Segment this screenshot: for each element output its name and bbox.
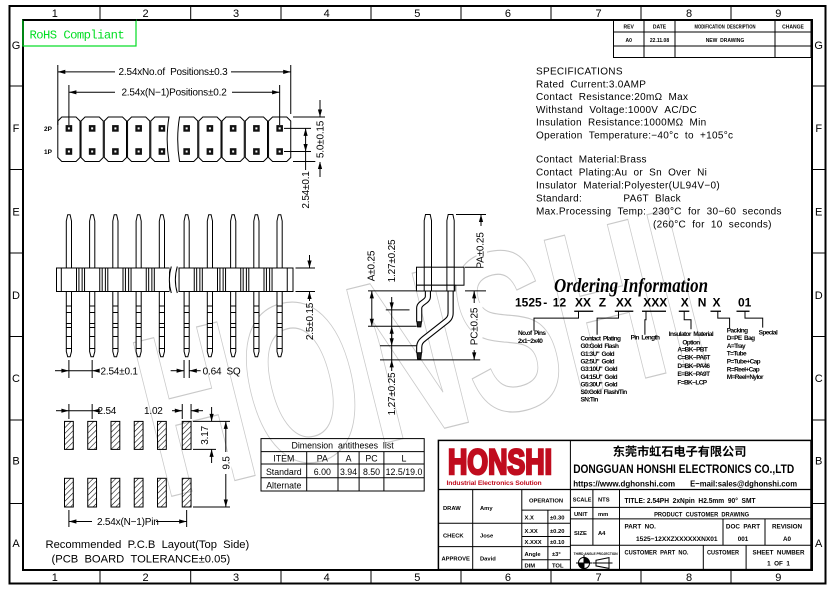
svg-text:PC±0.25: PC±0.25	[470, 307, 481, 345]
svg-text:Standard:: Standard:	[536, 194, 582, 205]
svg-text:±0.30: ±0.30	[550, 516, 564, 522]
svg-text:TOL: TOL	[552, 564, 564, 570]
svg-text:G2:5U" Gold: G2:5U" Gold	[581, 358, 615, 365]
svg-text:Option: Option	[682, 339, 700, 346]
svg-text:Contact Resistance:20mΩ Max: Contact Resistance:20mΩ Max	[536, 92, 688, 103]
svg-text:DATE: DATE	[653, 25, 667, 31]
svg-text:Contact Plating: Contact Plating	[581, 336, 622, 343]
svg-text:A: A	[12, 538, 20, 550]
svg-text:2P: 2P	[44, 126, 53, 133]
svg-text:P=Tube+Cap: P=Tube+Cap	[727, 359, 761, 366]
svg-text:DRAW: DRAW	[443, 506, 461, 512]
svg-text:T=Tube: T=Tube	[727, 351, 747, 358]
svg-text:DOC PART: DOC PART	[726, 524, 760, 531]
svg-text:22.11.08: 22.11.08	[650, 38, 669, 44]
svg-text:2x1~2x40: 2x1~2x40	[518, 338, 543, 345]
svg-text:Pin Length: Pin Length	[631, 335, 660, 342]
svg-text:0.64 SQ: 0.64 SQ	[203, 366, 241, 377]
svg-text:Amy: Amy	[480, 506, 493, 512]
svg-text:1: 1	[52, 572, 58, 584]
svg-text:8: 8	[686, 572, 692, 584]
svg-text:M=Reel+Nylor: M=Reel+Nylor	[727, 374, 764, 381]
svg-text:XX: XX	[575, 296, 591, 310]
svg-text:001: 001	[738, 536, 749, 543]
svg-text:CHECK: CHECK	[443, 534, 464, 540]
svg-text:B: B	[815, 456, 822, 468]
svg-text:REVISION: REVISION	[772, 524, 803, 531]
svg-text:1525: 1525	[515, 296, 542, 310]
svg-text:A: A	[815, 538, 823, 550]
svg-text:THIRD ANGLE PROJECTION: THIRD ANGLE PROJECTION	[574, 551, 618, 556]
svg-text:OPERATION: OPERATION	[529, 499, 563, 505]
svg-text:A: A	[346, 453, 352, 463]
svg-text:2: 2	[142, 8, 148, 20]
svg-text:X.X: X.X	[525, 516, 534, 522]
svg-text:2.54: 2.54	[98, 406, 117, 417]
svg-text:PRODUCT CUSTOMER DRAWING: PRODUCT CUSTOMER DRAWING	[654, 512, 749, 519]
svg-text:1.27±0.25: 1.27±0.25	[387, 372, 398, 415]
svg-text:X.XXX: X.XXX	[525, 540, 542, 546]
svg-text:A0: A0	[783, 536, 792, 543]
svg-text:XXX: XXX	[643, 296, 667, 310]
svg-text:SIZE: SIZE	[574, 531, 587, 537]
svg-text:2.54±0.1: 2.54±0.1	[101, 366, 139, 377]
svg-text:9: 9	[775, 572, 781, 584]
svg-text:Insulator Material:Polyester(: Insulator Material:Polyester(UL94V−0)	[536, 181, 720, 192]
svg-text:±0.20: ±0.20	[550, 529, 564, 535]
svg-text:(PCB BOARD TOLERANCE±0.05): (PCB BOARD TOLERANCE±0.05)	[52, 554, 231, 566]
svg-text:A0: A0	[625, 38, 632, 44]
svg-text:Recommended P.C.B Layout(Top: Recommended P.C.B Layout(Top Side)	[46, 539, 250, 551]
svg-text:6.00: 6.00	[314, 467, 331, 477]
svg-text:NEW DRAWING: NEW DRAWING	[706, 38, 745, 44]
svg-text:Contact Material:Brass: Contact Material:Brass	[536, 155, 647, 166]
svg-text:2.54±0.1: 2.54±0.1	[301, 171, 312, 209]
svg-text:PA±0.25: PA±0.25	[476, 232, 487, 269]
svg-text:6: 6	[505, 8, 511, 20]
svg-text:4: 4	[324, 572, 330, 584]
svg-text:CUSTOMER PART NO.: CUSTOMER PART NO.	[625, 550, 689, 557]
svg-text:APPROVE: APPROVE	[442, 557, 470, 563]
svg-text:E: E	[815, 207, 822, 219]
svg-text:2: 2	[142, 572, 148, 584]
svg-text:Special: Special	[759, 329, 778, 336]
svg-text:TITLE: 2.54PH 2xNpin H2.5mm: TITLE: 2.54PH 2xNpin H2.5mm 90° SMT	[625, 496, 756, 505]
svg-text:1.27±0.25: 1.27±0.25	[387, 239, 398, 282]
svg-text:2.54x(N−1)Positions±0.2: 2.54x(N−1)Positions±0.2	[121, 88, 227, 99]
svg-text:F: F	[815, 123, 822, 135]
svg-text:G0:Gold Flash: G0:Gold Flash	[581, 343, 619, 350]
svg-text:1P: 1P	[44, 149, 53, 156]
svg-text:8.50: 8.50	[363, 467, 380, 477]
svg-text:E: E	[12, 207, 19, 219]
svg-text:7: 7	[595, 572, 601, 584]
svg-text:Industrial Electronics Solutio: Industrial Electronics Solution	[447, 480, 542, 487]
svg-text:No.of Pins: No.of Pins	[518, 330, 546, 337]
svg-text:A±0.25: A±0.25	[367, 250, 378, 281]
svg-text:G4:15U" Gold: G4:15U" Gold	[581, 374, 618, 381]
svg-text:E−mail:sales@dghonshi.com: E−mail:sales@dghonshi.com	[690, 478, 797, 488]
svg-text:1: 1	[52, 8, 58, 20]
svg-text:N: N	[698, 296, 707, 310]
svg-text:DIM: DIM	[525, 564, 536, 570]
svg-text:MODIFICATION DESCRIPTION: MODIFICATION DESCRIPTION	[695, 25, 756, 31]
svg-text:2.54xNo.of Positions±0.3: 2.54xNo.of Positions±0.3	[119, 67, 229, 78]
svg-text:X.XX: X.XX	[525, 529, 538, 535]
svg-text:D=BK−PA46: D=BK−PA46	[677, 363, 710, 370]
svg-text:SCALE: SCALE	[573, 498, 592, 504]
svg-text:5: 5	[414, 572, 420, 584]
svg-text:DONGGUAN HONSHI ELECTRONICS CO: DONGGUAN HONSHI ELECTRONICS CO.,LTD	[573, 462, 794, 476]
svg-text:PART NO.: PART NO.	[625, 524, 657, 531]
svg-text:G: G	[814, 40, 823, 52]
svg-text:8: 8	[686, 8, 692, 20]
svg-text:5: 5	[414, 8, 420, 20]
svg-text:Alternate: Alternate	[266, 480, 301, 490]
svg-text:Rated Current:3.0AMP: Rated Current:3.0AMP	[536, 79, 646, 90]
svg-text:D: D	[815, 290, 823, 302]
svg-text:Angle: Angle	[525, 552, 542, 558]
svg-text:±0.10: ±0.10	[550, 540, 564, 546]
svg-text:3.94: 3.94	[340, 467, 357, 477]
svg-text:Packing: Packing	[727, 327, 748, 334]
svg-text:REV: REV	[624, 25, 635, 31]
svg-text:G5:30U" Gold: G5:30U" Gold	[581, 381, 618, 388]
svg-text:1 OF 1: 1 OF 1	[767, 561, 790, 568]
svg-text:PA: PA	[317, 453, 328, 463]
svg-text:6: 6	[505, 572, 511, 584]
svg-text:A=BK−PBT: A=BK−PBT	[677, 347, 708, 354]
svg-text:L: L	[402, 453, 407, 463]
svg-text:SPECIFICATIONS: SPECIFICATIONS	[536, 67, 623, 78]
svg-text:Jose: Jose	[480, 534, 494, 540]
svg-text:Ordering Information: Ordering Information	[554, 276, 708, 297]
svg-text:D=PE Bag: D=PE Bag	[727, 335, 755, 342]
svg-text:PC: PC	[365, 453, 378, 463]
svg-text:A4: A4	[598, 531, 606, 537]
svg-text:4: 4	[324, 8, 330, 20]
svg-text:XX: XX	[616, 296, 632, 310]
svg-text:PA6T Black: PA6T Black	[623, 194, 681, 205]
svg-text:1.02: 1.02	[144, 406, 163, 417]
svg-text:7: 7	[595, 8, 601, 20]
svg-text:R=Reel+Cap: R=Reel+Cap	[727, 366, 760, 373]
svg-text:12: 12	[553, 296, 567, 310]
svg-text:UNIT: UNIT	[574, 512, 588, 518]
svg-text:C: C	[12, 373, 20, 385]
svg-text:Standard: Standard	[266, 467, 302, 477]
svg-text:https://www.dghonshi.com: https://www.dghonshi.com	[573, 478, 675, 488]
svg-text:E=BK−PA9T: E=BK−PA9T	[677, 371, 710, 378]
svg-text:RoHS Compliant: RoHS Compliant	[30, 29, 125, 43]
svg-text:mm: mm	[598, 512, 608, 518]
svg-text:-: -	[543, 296, 547, 310]
svg-text:David: David	[480, 557, 496, 563]
svg-text:5.0±0.15: 5.0±0.15	[316, 120, 327, 158]
svg-text:CHANGE: CHANGE	[782, 25, 804, 31]
svg-text:±3°: ±3°	[552, 552, 561, 558]
svg-text:C: C	[815, 373, 823, 385]
svg-text:CUSTOMER: CUSTOMER	[707, 550, 739, 557]
svg-text:Operation Temperature:−40°c: Operation Temperature:−40°c to +105°c	[536, 131, 733, 142]
svg-text:S0:Gold Flash/Tin: S0:Gold Flash/Tin	[581, 389, 628, 396]
svg-text:Insulator Material: Insulator Material	[669, 331, 714, 338]
svg-text:X: X	[713, 296, 721, 310]
svg-text:9.5: 9.5	[221, 456, 232, 470]
svg-text:G: G	[12, 40, 21, 52]
svg-text:SN:Tin: SN:Tin	[581, 397, 599, 404]
svg-text:B: B	[12, 456, 19, 468]
svg-text:F=BK−LCP: F=BK−LCP	[677, 379, 707, 386]
svg-text:F: F	[13, 123, 20, 135]
svg-text:G1:3U" Gold: G1:3U" Gold	[581, 351, 615, 358]
svg-text:1525−12XXZXXXXXXNX01: 1525−12XXZXXXXXXNX01	[636, 536, 718, 543]
svg-text:12.5/19.0: 12.5/19.0	[386, 467, 423, 477]
svg-text:G3:10U" Gold: G3:10U" Gold	[581, 366, 618, 373]
svg-text:Insulation Resistance:1000MΩ: Insulation Resistance:1000MΩ Min	[536, 118, 707, 129]
svg-text:3: 3	[233, 572, 239, 584]
svg-text:(260°C for 10 seconds): (260°C for 10 seconds)	[653, 220, 772, 231]
svg-text:Withstand Voltage:1000V AC/D: Withstand Voltage:1000V AC/DC	[536, 105, 697, 116]
svg-text:3.17: 3.17	[200, 425, 211, 444]
svg-text:9: 9	[775, 8, 781, 20]
svg-text:2.54x(N−1)Pin: 2.54x(N−1)Pin	[97, 517, 159, 528]
svg-text:Z: Z	[599, 296, 606, 310]
svg-text:X: X	[681, 296, 689, 310]
svg-text:C=BK−PA6T: C=BK−PA6T	[677, 355, 710, 362]
svg-text:ITEM: ITEM	[273, 453, 294, 463]
svg-text:SHEET NUMBER: SHEET NUMBER	[753, 550, 805, 557]
svg-text:Dimension antitheses list: Dimension antitheses list	[292, 441, 395, 451]
svg-text:01: 01	[738, 296, 752, 310]
svg-text:2.5±0.15: 2.5±0.15	[305, 302, 316, 340]
svg-text:HONSHI: HONSHI	[448, 443, 552, 482]
svg-text:D: D	[12, 290, 20, 302]
svg-text:A=Tray: A=Tray	[727, 343, 746, 350]
svg-text:NTS: NTS	[598, 498, 610, 504]
svg-text:Contact Plating:Au or Sn O: Contact Plating:Au or Sn Over Ni	[536, 168, 707, 179]
svg-text:3: 3	[233, 8, 239, 20]
svg-text:Max.Processing Temp: 230°C: Max.Processing Temp: 230°C for 30−60 sec…	[536, 207, 782, 218]
